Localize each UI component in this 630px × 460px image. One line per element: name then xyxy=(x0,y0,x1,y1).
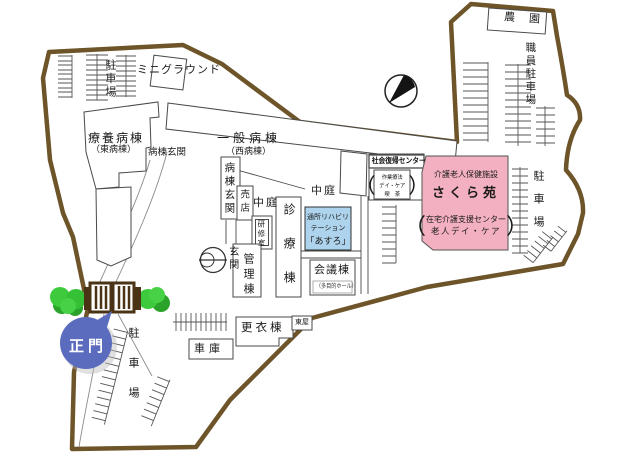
parking-stripes-nw-3 xyxy=(116,55,136,97)
rehab-center-sub-line1: 作業療法 xyxy=(379,172,405,181)
label-mini-ground: ミニグラウンド xyxy=(137,64,221,77)
label-main-gate: 正門 xyxy=(63,335,109,356)
label-general-ward: 一般病棟 xyxy=(217,131,281,145)
parking-stripes-inner xyxy=(382,205,396,263)
label-sakura-en: 介護老人保健施設 さくら苑 （ 在宅介護支援センター 老人デイ・ケア ） xyxy=(422,169,510,241)
sakura-sub-line2: 老人デイ・ケア xyxy=(426,225,506,237)
north-arrow-icon xyxy=(385,75,417,107)
label-entrance: 玄関 xyxy=(226,246,238,272)
paren-open: （ xyxy=(355,170,376,200)
day-rehab-line2: テーション xyxy=(305,223,351,233)
label-garage: 車庫 xyxy=(194,343,224,356)
day-rehab-line1: 通所リハビリ xyxy=(305,212,351,222)
label-staff-parking: 職員駐車場 xyxy=(524,42,536,107)
label-ward-entrance-h: 病棟玄関 xyxy=(148,147,186,158)
label-courtyard-2: 中庭 xyxy=(311,185,337,198)
label-conference-wing: 会議棟 xyxy=(314,264,350,277)
label-rehab-center-sub: （ 作業療法 デイ・ケア 喫 茶 ） xyxy=(374,170,410,199)
sakura-sub-line1: 在宅介護支援センター xyxy=(426,214,506,225)
parking-stripes-staff-3 xyxy=(536,106,555,146)
rehab-center-sub-line2: デイ・ケア xyxy=(379,180,405,189)
label-rehab-center: 社会復帰センター xyxy=(372,155,422,168)
sakura-name: さくら苑 xyxy=(422,182,510,201)
label-admin-wing: 管理棟 xyxy=(241,253,254,298)
paren-close: ） xyxy=(506,209,528,241)
parking-stripes-se-2 xyxy=(543,225,567,252)
label-parking-nw: 駐車場 xyxy=(103,59,116,100)
label-gazebo: 東屋 xyxy=(292,317,312,327)
main-gate-icon xyxy=(84,283,141,312)
label-training-room: 研修室 xyxy=(256,220,265,249)
parking-stripes-staff-1 xyxy=(463,62,488,142)
label-recuperation-ward-sub: （東病棟） xyxy=(91,145,136,156)
rehab-center-sub-line3: 喫 茶 xyxy=(379,189,405,198)
sakura-sub: （ 在宅介護支援センター 老人デイ・ケア ） xyxy=(422,209,510,241)
label-conference-sub: （多目的ホール） xyxy=(316,281,349,293)
building-south-wing xyxy=(96,187,131,266)
parking-stripes-nw-1 xyxy=(58,55,72,98)
sakura-type: 介護老人保健施設 xyxy=(422,169,510,180)
fence-stripes xyxy=(173,313,227,331)
rotary-icon xyxy=(199,248,227,273)
label-parking-east: 駐車場 xyxy=(531,170,544,239)
label-clinic-wing: 診療棟 xyxy=(282,203,296,305)
paren-open: （ xyxy=(404,209,426,241)
label-courtyard-1: 中庭 xyxy=(253,197,279,210)
label-recuperation-ward: 療養病棟 xyxy=(88,131,144,145)
label-general-ward-sub: （西病棟） xyxy=(226,147,271,158)
parking-stripes-south-2 xyxy=(139,375,170,426)
label-ward-entrance-v: 病棟玄関 xyxy=(223,162,235,216)
label-shop: 売店 xyxy=(238,189,249,216)
hospital-campus-map: 駐車場 ミニグラウンド 農園 職員駐車場 療養病棟 （東病棟） 病棟玄関 一般病… xyxy=(0,0,630,460)
day-rehab-line3: 「あすろ」 xyxy=(305,234,351,247)
label-changing-wing: 更衣棟 xyxy=(241,321,285,335)
label-parking-south: 駐車場 xyxy=(126,327,139,417)
label-day-rehab: 通所リハビリ テーション 「あすろ」 xyxy=(305,208,351,250)
